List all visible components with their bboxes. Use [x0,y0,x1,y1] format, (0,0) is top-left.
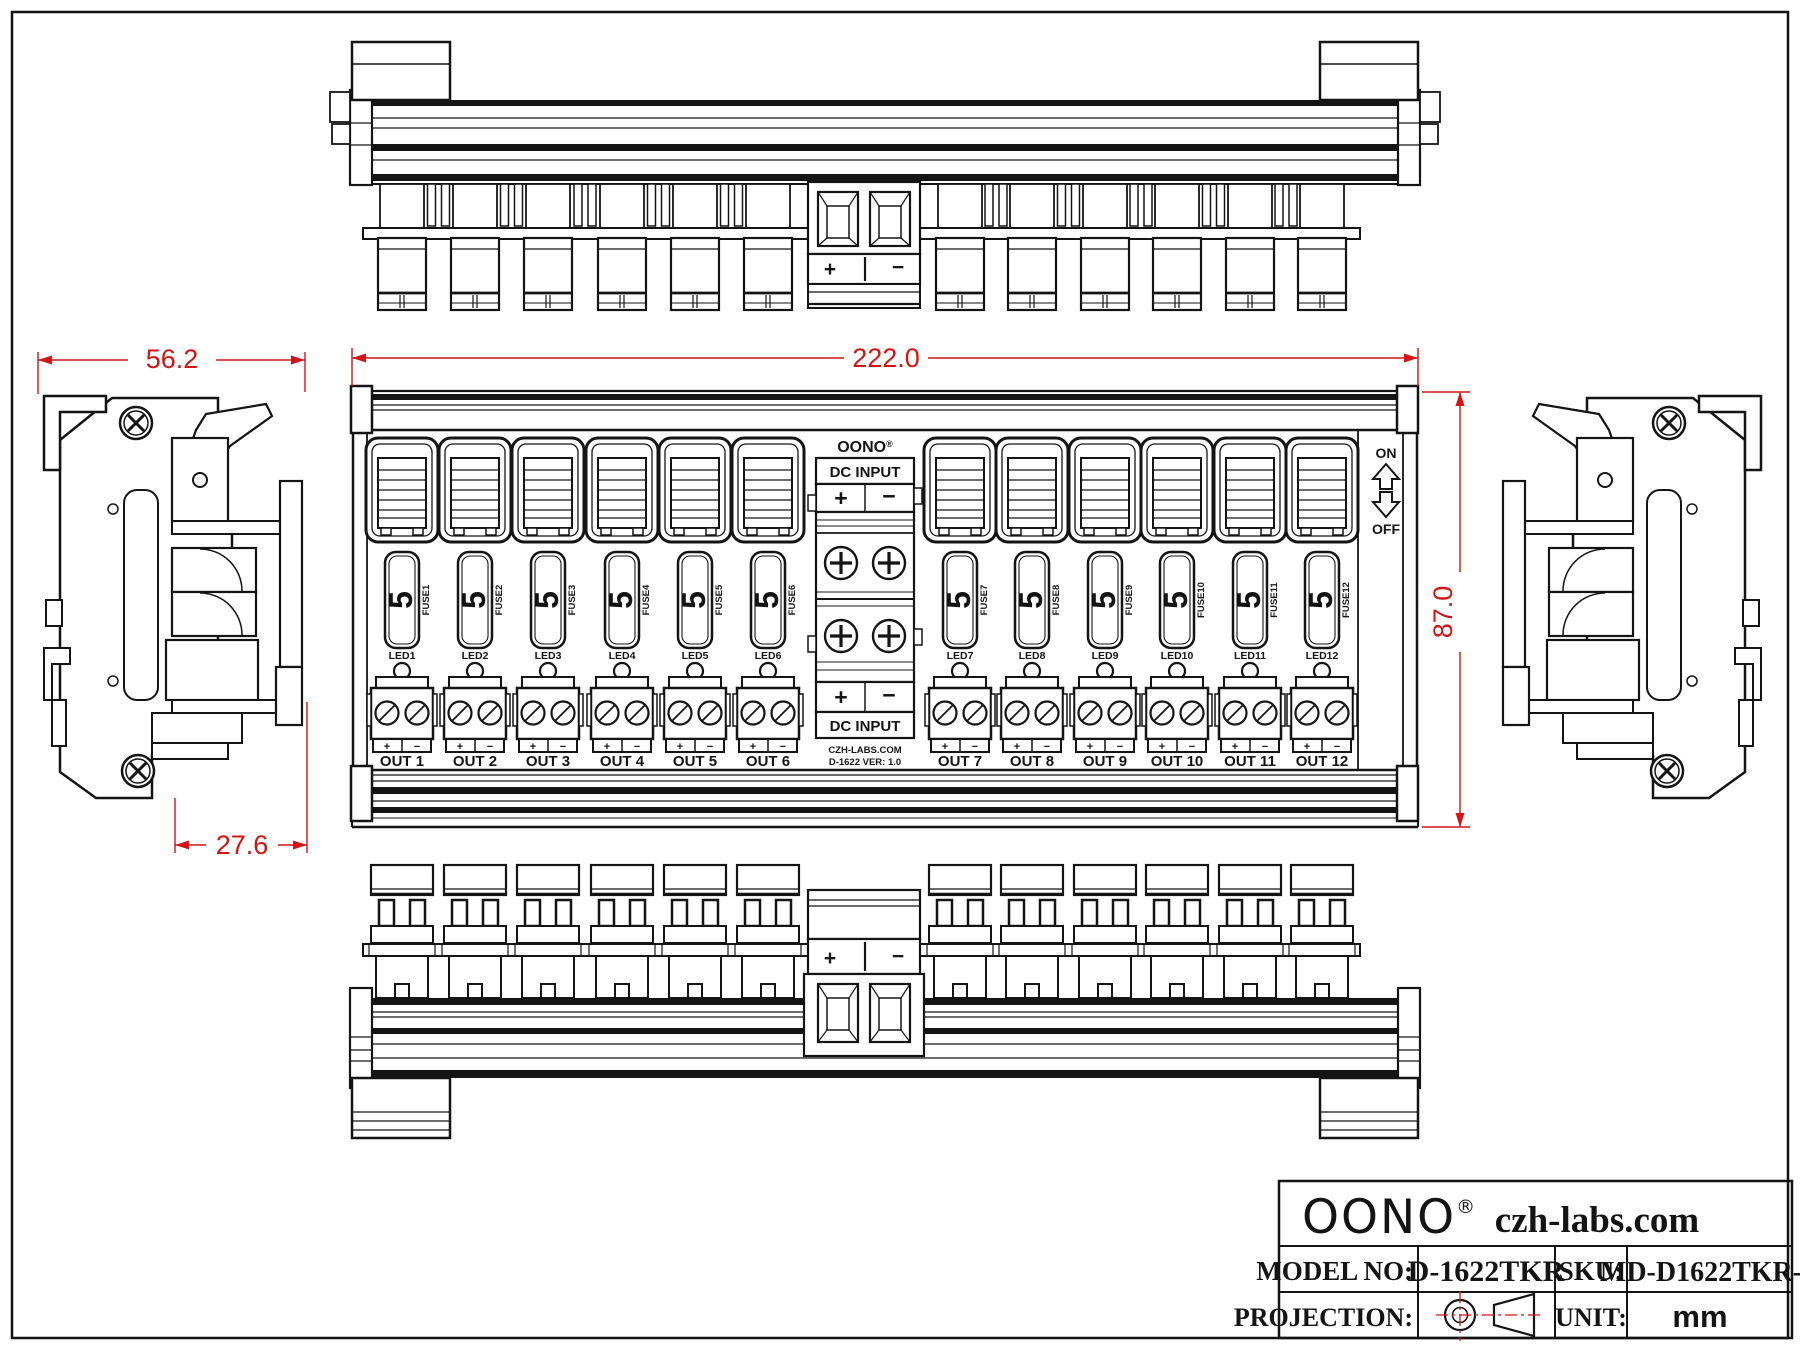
top-terminal-stub [1300,184,1344,228]
fuse-rating: 5 [529,591,565,609]
dimension-arrow [352,354,366,363]
top-terminal-stub [453,184,497,228]
terminal-minus: − [1189,741,1195,753]
terminal-minus: − [972,741,978,753]
led-label: LED11 [1234,650,1266,662]
top-terminal-block [1226,238,1274,310]
bottom-terminal-block [515,865,581,998]
terminal-minus: − [414,741,420,753]
led-label: LED4 [609,650,636,662]
top-terminal-block [936,238,984,310]
mount-bracket [1397,386,1418,433]
top-terminal-stub [746,184,790,228]
din-release-clip [1739,700,1753,746]
bottom-terminal-block [1289,865,1355,998]
top-input-minus: − [892,256,904,279]
terminal-minus: − [487,741,493,753]
fuse-label: FUSE2 [494,585,505,616]
terminal-plus: + [530,741,536,753]
fuse-rating: 5 [676,591,712,609]
top-terminal-stub [526,184,570,228]
led-label: LED8 [1019,650,1046,662]
fuse-rating: 5 [383,591,419,609]
front-channel-9: 5FUSE9LED9+−OUT 9 [1069,438,1141,770]
fuse-label: FUSE4 [641,584,652,615]
top-mount-foot [1320,42,1418,100]
wire-entry [937,900,952,926]
projection-label: PROJECTION: [1234,1303,1413,1332]
mount-bracket [1397,766,1418,821]
top-terminal-stub [380,184,424,228]
top-terminal-block [524,238,572,310]
dimension-arrow [293,841,307,850]
bottom-input-block [804,890,924,1056]
bottom-terminal-block [927,865,993,998]
wire-entry [1040,900,1055,926]
led-label: LED6 [755,650,782,662]
technical-drawing: + − 5FUSE1LED1+−OUT 15FUSE2LED2+−OUT 25F… [0,0,1800,1350]
output-label: OUT 8 [1010,753,1054,770]
top-terminal-stub [1083,184,1127,228]
bottom-mount-step [350,988,372,1088]
terminal-plus: + [1304,741,1310,753]
dimension-arrow [1456,392,1465,406]
fuse-label: FUSE6 [787,585,798,616]
terminal-minus: − [634,741,640,753]
top-mount-foot [352,42,450,100]
dimension-arrow [1404,354,1418,363]
dim-overall-width: 222.0 [852,343,920,373]
dc-input-top-label: DC INPUT [830,464,901,481]
terminal-minus: − [1044,741,1050,753]
wire-entry [1009,900,1024,926]
mount-bracket [351,766,372,821]
bottom-terminal-block [1072,865,1138,998]
wire-entry [1258,900,1273,926]
fuse-label: FUSE9 [1124,585,1135,616]
title-logo-reg: ® [1456,1196,1477,1218]
fuse-holder-profile [1577,438,1633,522]
output-label: OUT 4 [600,753,645,770]
dc-input-screw-block [816,512,914,682]
arrow-up-icon [1373,464,1399,489]
fuse-rating: 5 [1231,591,1267,609]
bracket-slot [124,490,158,700]
sku-value: MD-D1622TKR-1 [1600,1257,1800,1288]
dim-side-width: 56.2 [146,344,199,374]
left-side-view [44,396,302,798]
terminal-minus: − [707,741,713,753]
output-label: OUT 1 [380,753,424,770]
right-side-view [1503,396,1761,798]
wire-entry [1113,900,1128,926]
bottom-terminal-block [735,865,801,998]
terminal-minus: − [780,741,786,753]
model-label: MODEL NO: [1256,1256,1413,1286]
wire-entry [1082,900,1097,926]
output-label: OUT 9 [1083,753,1127,770]
output-label: OUT 3 [526,753,570,770]
wire-entry [703,900,718,926]
wire-entry [1299,900,1314,926]
output-label: OUT 6 [746,753,790,770]
title-logo-name: OONO [1302,1190,1456,1245]
wire-entry [968,900,983,926]
fuse-label: FUSE11 [1269,582,1280,618]
fuse-label: FUSE7 [979,585,990,616]
fuse-holder-profile [172,438,228,522]
terminal-plus: + [1159,741,1165,753]
wire-entry [1330,900,1345,926]
unit-label: UNIT: [1555,1303,1627,1332]
top-terminal-block [671,238,719,310]
front-face-edge [280,481,302,667]
top-terminal-block [744,238,792,310]
terminal-plus: + [1014,741,1020,753]
front-channel-6: 5FUSE6LED6+−OUT 6 [732,438,804,770]
fuse-rating: 5 [456,591,492,609]
terminal-plus: + [457,741,463,753]
top-view [330,42,1440,310]
terminal-plus: + [604,741,610,753]
front-brand: OONO® [837,439,893,456]
dc-input-top-plus: + [834,485,847,511]
led-label: LED2 [462,650,489,662]
top-terminal-stub [600,184,644,228]
led-label: LED10 [1161,650,1194,662]
terminal-profile [1547,640,1639,700]
led-label: LED1 [389,650,416,662]
dc-input-bottom-label: DC INPUT [830,718,901,735]
fuse-label: FUSE1 [421,584,432,615]
front-face-edge [1503,481,1525,667]
switch-on-label: ON [1376,445,1397,461]
dimension-arrow [291,356,305,365]
unit-value: mm [1672,1299,1727,1334]
led-label: LED12 [1306,650,1339,662]
dc-input-top-minus: − [882,483,895,509]
led-label: LED5 [682,650,709,662]
front-channel-12: 5FUSE12LED12+−OUT 12 [1286,438,1358,770]
dc-input-bottom-plus: + [834,684,847,710]
bottom-terminal-block [662,865,728,998]
dimension-arrow [175,841,189,850]
wire-entry [483,900,498,926]
front-channel-8: 5FUSE8LED8+−OUT 8 [996,438,1068,770]
terminal-plus: + [1232,741,1238,753]
fuse-label: FUSE12 [1341,582,1352,618]
wire-entry [556,900,571,926]
front-channel-4: 5FUSE4LED4+−OUT 4 [586,438,658,770]
wire-entry [452,900,467,926]
bottom-terminal-block [1217,865,1283,998]
terminal-plus: + [942,741,948,753]
terminal-minus: − [560,741,566,753]
din-release-clip [52,700,66,746]
fuse-label: FUSE3 [567,585,578,616]
front-brand-name: OONO [837,439,886,456]
top-mount-step [1398,90,1420,185]
fuse-rating: 5 [1013,591,1049,609]
front-channel-5: 5FUSE5LED5+−OUT 5 [659,438,731,770]
front-channel-11: 5FUSE11LED11+−OUT 11 [1214,438,1286,770]
front-channel-2: 5FUSE2LED2+−OUT 2 [439,438,511,770]
top-terminal-stub [1155,184,1199,228]
top-terminal-stub [1228,184,1272,228]
output-label: OUT 2 [453,753,497,770]
title-website: czh-labs.com [1495,1200,1700,1241]
top-input-block [808,182,920,308]
bottom-terminal-block [589,865,655,998]
wire-entry [630,900,645,926]
switch-off-label: OFF [1372,521,1400,537]
wire-entry [379,900,394,926]
wire-entry [1227,900,1242,926]
fuse-rating: 5 [1303,591,1339,609]
fuse-rating: 5 [941,591,977,609]
bottom-input-minus: − [892,945,904,968]
output-label: OUT 11 [1224,753,1276,770]
top-terminal-block [1008,238,1056,310]
fuse-rating: 5 [603,591,639,609]
front-footer-version: D-1622 VER: 1.0 [829,757,901,768]
top-terminal-block [1081,238,1129,310]
bottom-view [350,865,1420,1138]
mount-bracket [351,386,372,433]
terminal-plus: + [677,741,683,753]
front-footer-site: CZH-LABS.COM [828,745,901,756]
top-terminal-block [1298,238,1346,310]
wire-entry [745,900,760,926]
bottom-mount-foot [1320,1078,1418,1138]
fuse-label: FUSE8 [1051,585,1062,616]
terminal-plus: + [750,741,756,753]
output-label: OUT 5 [673,753,717,770]
terminal-plus: + [1087,741,1093,753]
bottom-mount-foot [352,1078,450,1138]
front-brand-reg: ® [886,439,893,449]
dc-input-column [808,458,922,738]
front-channel-3: 5FUSE3LED3+−OUT 3 [512,438,584,770]
bottom-terminal-block [442,865,508,998]
output-label: OUT 7 [938,753,982,770]
top-mount-step [350,90,372,185]
dim-overall-height: 87.0 [1428,586,1458,639]
arrow-down-icon [1373,492,1399,517]
fuse-rating: 5 [749,591,785,609]
led-label: LED9 [1092,650,1119,662]
wire-entry [410,900,425,926]
led-label: LED3 [535,650,562,662]
wire-entry [599,900,614,926]
dimension-arrow [38,356,52,365]
led-label: LED7 [947,650,974,662]
terminal-profile [166,640,258,700]
bottom-input-plus: + [824,947,836,970]
fuse-label: FUSE10 [1196,582,1207,618]
output-label: OUT 10 [1151,753,1204,770]
top-terminal-stub [1010,184,1054,228]
wire-entry [1185,900,1200,926]
front-channel-7: 5FUSE7LED7+−OUT 7 [924,438,996,770]
fuse-rating: 5 [1158,591,1194,609]
output-label: OUT 12 [1296,753,1349,770]
top-terminal-stub [938,184,982,228]
terminal-minus: − [1334,741,1340,753]
bottom-terminal-block [369,865,435,998]
top-terminal-block [598,238,646,310]
drawing-sheet: + − 5FUSE1LED1+−OUT 15FUSE2LED2+−OUT 25F… [0,0,1800,1350]
projection-symbol-icon [1436,1291,1542,1341]
wire-entry [525,900,540,926]
front-channel-1: 5FUSE1LED1+−OUT 1 [366,438,438,770]
fuse-label: FUSE5 [714,584,725,615]
terminal-minus: − [1262,741,1268,753]
title-logo: OONO® [1302,1190,1477,1245]
top-terminal-block [1153,238,1201,310]
dim-side-depth: 27.6 [216,830,269,860]
bottom-terminal-block [1144,865,1210,998]
wire-entry [776,900,791,926]
top-terminal-block [451,238,499,310]
bottom-terminal-block [999,865,1065,998]
bottom-mount-step [1398,988,1420,1088]
front-channel-10: 5FUSE10LED10+−OUT 10 [1141,438,1213,770]
wire-entry [672,900,687,926]
top-terminal-block [378,238,426,310]
top-input-plus: + [824,258,836,281]
dimension-arrow [1456,813,1465,827]
top-terminal-stub [673,184,717,228]
fuse-rating: 5 [1086,591,1122,609]
dc-input-bottom-minus: − [882,682,895,708]
bracket-slot [1647,490,1681,700]
model-value: D-1622TKR [1408,1255,1565,1288]
terminal-minus: − [1117,741,1123,753]
wire-entry [1154,900,1169,926]
terminal-plus: + [384,741,390,753]
